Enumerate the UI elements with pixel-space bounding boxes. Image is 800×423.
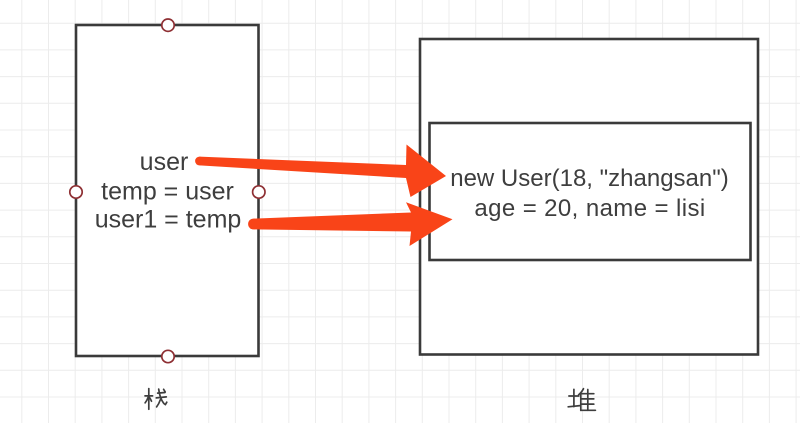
svg-text:temp = user: temp = user bbox=[101, 178, 234, 206]
svg-text:age = 20, name = lisi: age = 20, name = lisi bbox=[474, 195, 705, 222]
svg-text:user: user bbox=[140, 148, 189, 176]
svg-text:user1 = temp: user1 = temp bbox=[95, 206, 242, 234]
svg-text:new User(18, "zhangsan"): new User(18, "zhangsan") bbox=[450, 165, 729, 192]
